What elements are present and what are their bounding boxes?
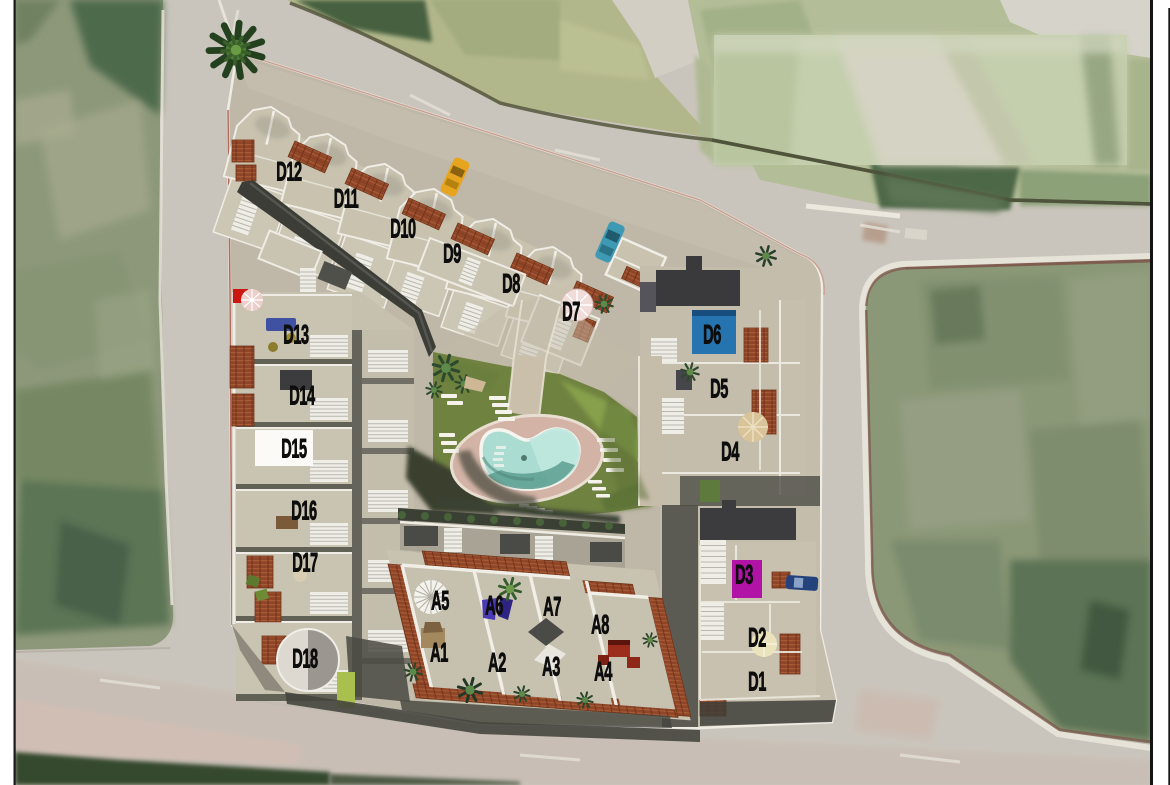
svg-text:D17: D17 <box>292 548 317 578</box>
svg-text:D4: D4 <box>721 437 739 467</box>
svg-text:A1: A1 <box>430 638 448 668</box>
svg-text:D16: D16 <box>291 496 317 526</box>
svg-text:D14: D14 <box>289 381 315 411</box>
svg-text:D18: D18 <box>292 644 318 674</box>
svg-text:A6: A6 <box>485 591 503 621</box>
svg-text:A4: A4 <box>594 657 612 687</box>
svg-text:D1: D1 <box>748 667 766 697</box>
svg-text:D11: D11 <box>334 184 359 214</box>
svg-text:D10: D10 <box>390 214 416 244</box>
svg-text:A5: A5 <box>431 586 449 616</box>
svg-text:D15: D15 <box>281 434 307 464</box>
svg-text:A8: A8 <box>591 610 609 640</box>
svg-text:A7: A7 <box>543 592 561 622</box>
svg-text:A3: A3 <box>542 652 560 682</box>
svg-text:D3: D3 <box>735 560 753 590</box>
svg-text:D9: D9 <box>443 239 461 269</box>
svg-text:D13: D13 <box>283 320 309 350</box>
svg-text:D7: D7 <box>562 297 580 327</box>
svg-text:D8: D8 <box>502 269 520 299</box>
svg-text:D5: D5 <box>710 374 728 404</box>
svg-text:A2: A2 <box>488 648 506 678</box>
svg-text:D6: D6 <box>703 320 721 350</box>
svg-text:D12: D12 <box>276 157 302 187</box>
svg-text:D2: D2 <box>748 623 766 653</box>
